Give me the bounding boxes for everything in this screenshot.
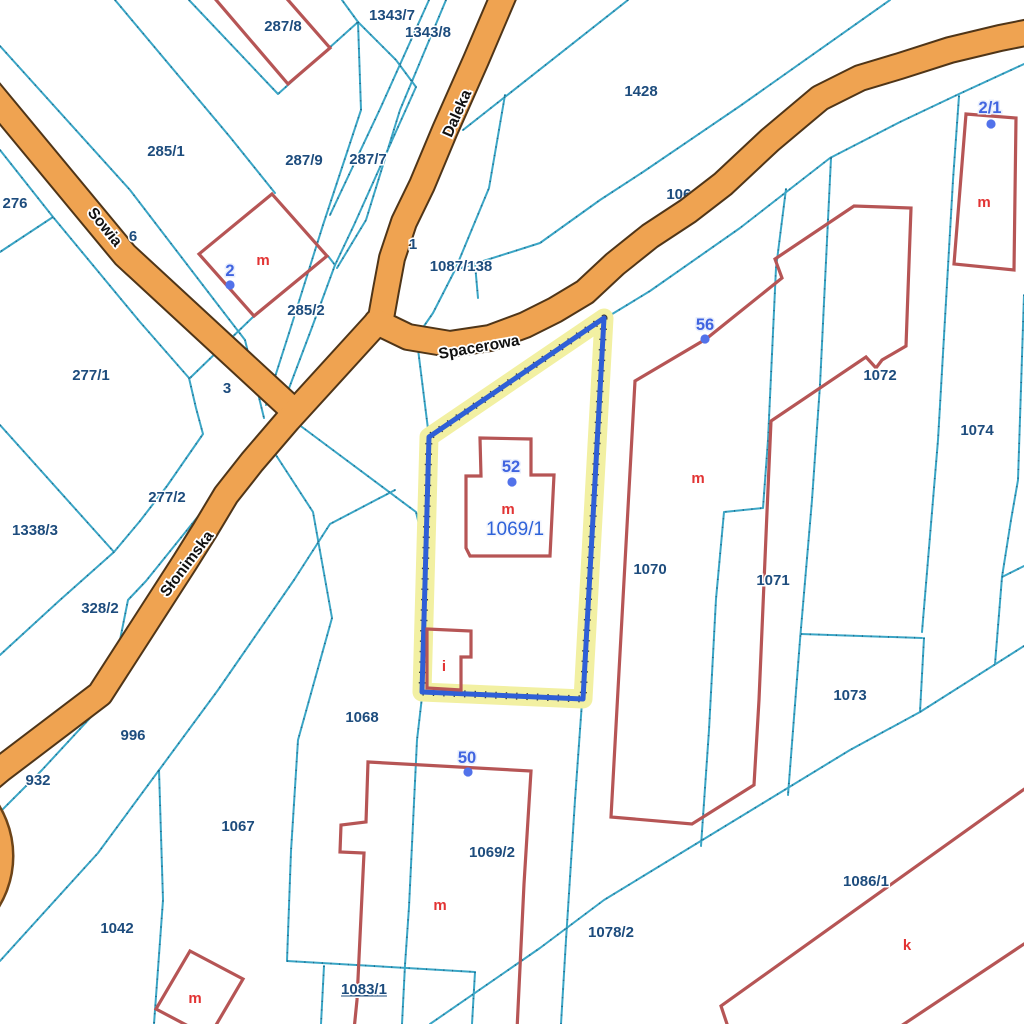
svg-text:1071: 1071: [756, 572, 789, 589]
svg-text:328/2: 328/2: [81, 600, 119, 617]
svg-text:m: m: [256, 252, 269, 269]
svg-text:932: 932: [25, 772, 50, 789]
svg-text:k: k: [903, 937, 912, 954]
svg-text:56: 56: [696, 316, 714, 334]
svg-text:1083/1: 1083/1: [341, 981, 387, 998]
svg-text:287/9: 287/9: [285, 152, 323, 169]
svg-text:287/8: 287/8: [264, 18, 302, 35]
svg-text:1343/7: 1343/7: [369, 7, 415, 24]
svg-text:1072: 1072: [863, 367, 896, 384]
svg-text:276: 276: [2, 195, 27, 212]
svg-text:1338/3: 1338/3: [12, 522, 58, 539]
svg-text:m: m: [188, 990, 201, 1007]
svg-text:6: 6: [129, 228, 137, 245]
svg-text:52: 52: [502, 458, 520, 476]
svg-text:1428: 1428: [624, 83, 657, 100]
svg-text:1078/2: 1078/2: [588, 924, 634, 941]
svg-text:277/1: 277/1: [72, 367, 110, 384]
svg-text:m: m: [977, 194, 990, 211]
svg-text:1074: 1074: [960, 422, 994, 439]
svg-text:2: 2: [225, 262, 234, 280]
svg-text:1: 1: [409, 236, 417, 253]
svg-text:1068: 1068: [345, 709, 378, 726]
svg-text:50: 50: [458, 749, 476, 767]
svg-text:1087/138: 1087/138: [430, 258, 493, 275]
svg-text:996: 996: [120, 727, 145, 744]
svg-text:1069/2: 1069/2: [469, 844, 515, 861]
svg-text:1069/1: 1069/1: [486, 519, 544, 540]
svg-text:287/7: 287/7: [349, 151, 387, 168]
svg-text:3: 3: [223, 380, 231, 397]
svg-text:1073: 1073: [833, 687, 866, 704]
svg-text:1067: 1067: [221, 818, 254, 835]
svg-text:i: i: [442, 658, 446, 675]
svg-text:277/2: 277/2: [148, 489, 186, 506]
svg-text:1086/1: 1086/1: [843, 873, 889, 890]
svg-text:2/1: 2/1: [979, 99, 1002, 117]
svg-text:285/2: 285/2: [287, 302, 325, 319]
svg-text:1343/8: 1343/8: [405, 24, 451, 41]
svg-text:1070: 1070: [633, 561, 666, 578]
svg-text:m: m: [501, 501, 514, 518]
svg-text:285/1: 285/1: [147, 143, 185, 160]
svg-text:m: m: [433, 897, 446, 914]
svg-text:1042: 1042: [100, 920, 133, 937]
svg-text:m: m: [691, 470, 704, 487]
